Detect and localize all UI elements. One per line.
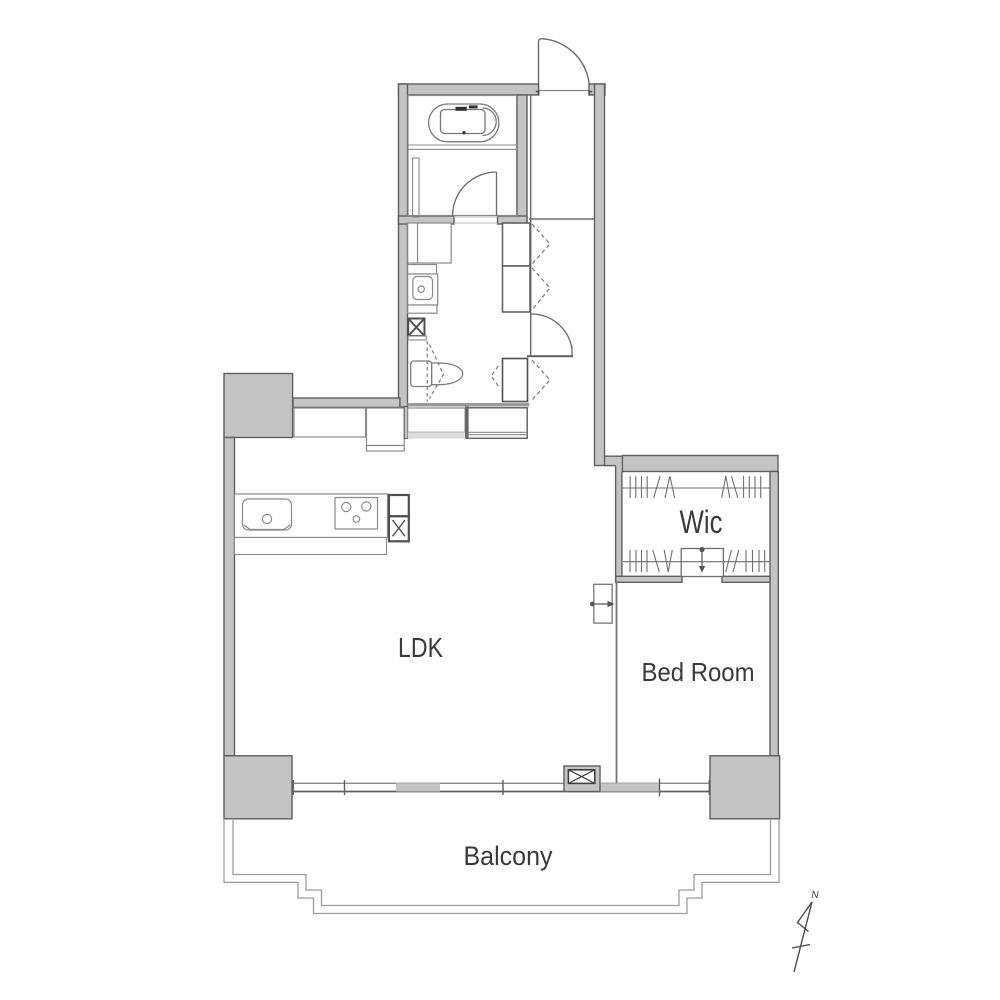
svg-text:N: N (811, 890, 819, 901)
svg-text:LDK: LDK (398, 632, 443, 663)
svg-text:Wic: Wic (680, 504, 723, 540)
svg-text:Bed Room: Bed Room (642, 657, 755, 687)
svg-text:Balcony: Balcony (464, 841, 553, 871)
